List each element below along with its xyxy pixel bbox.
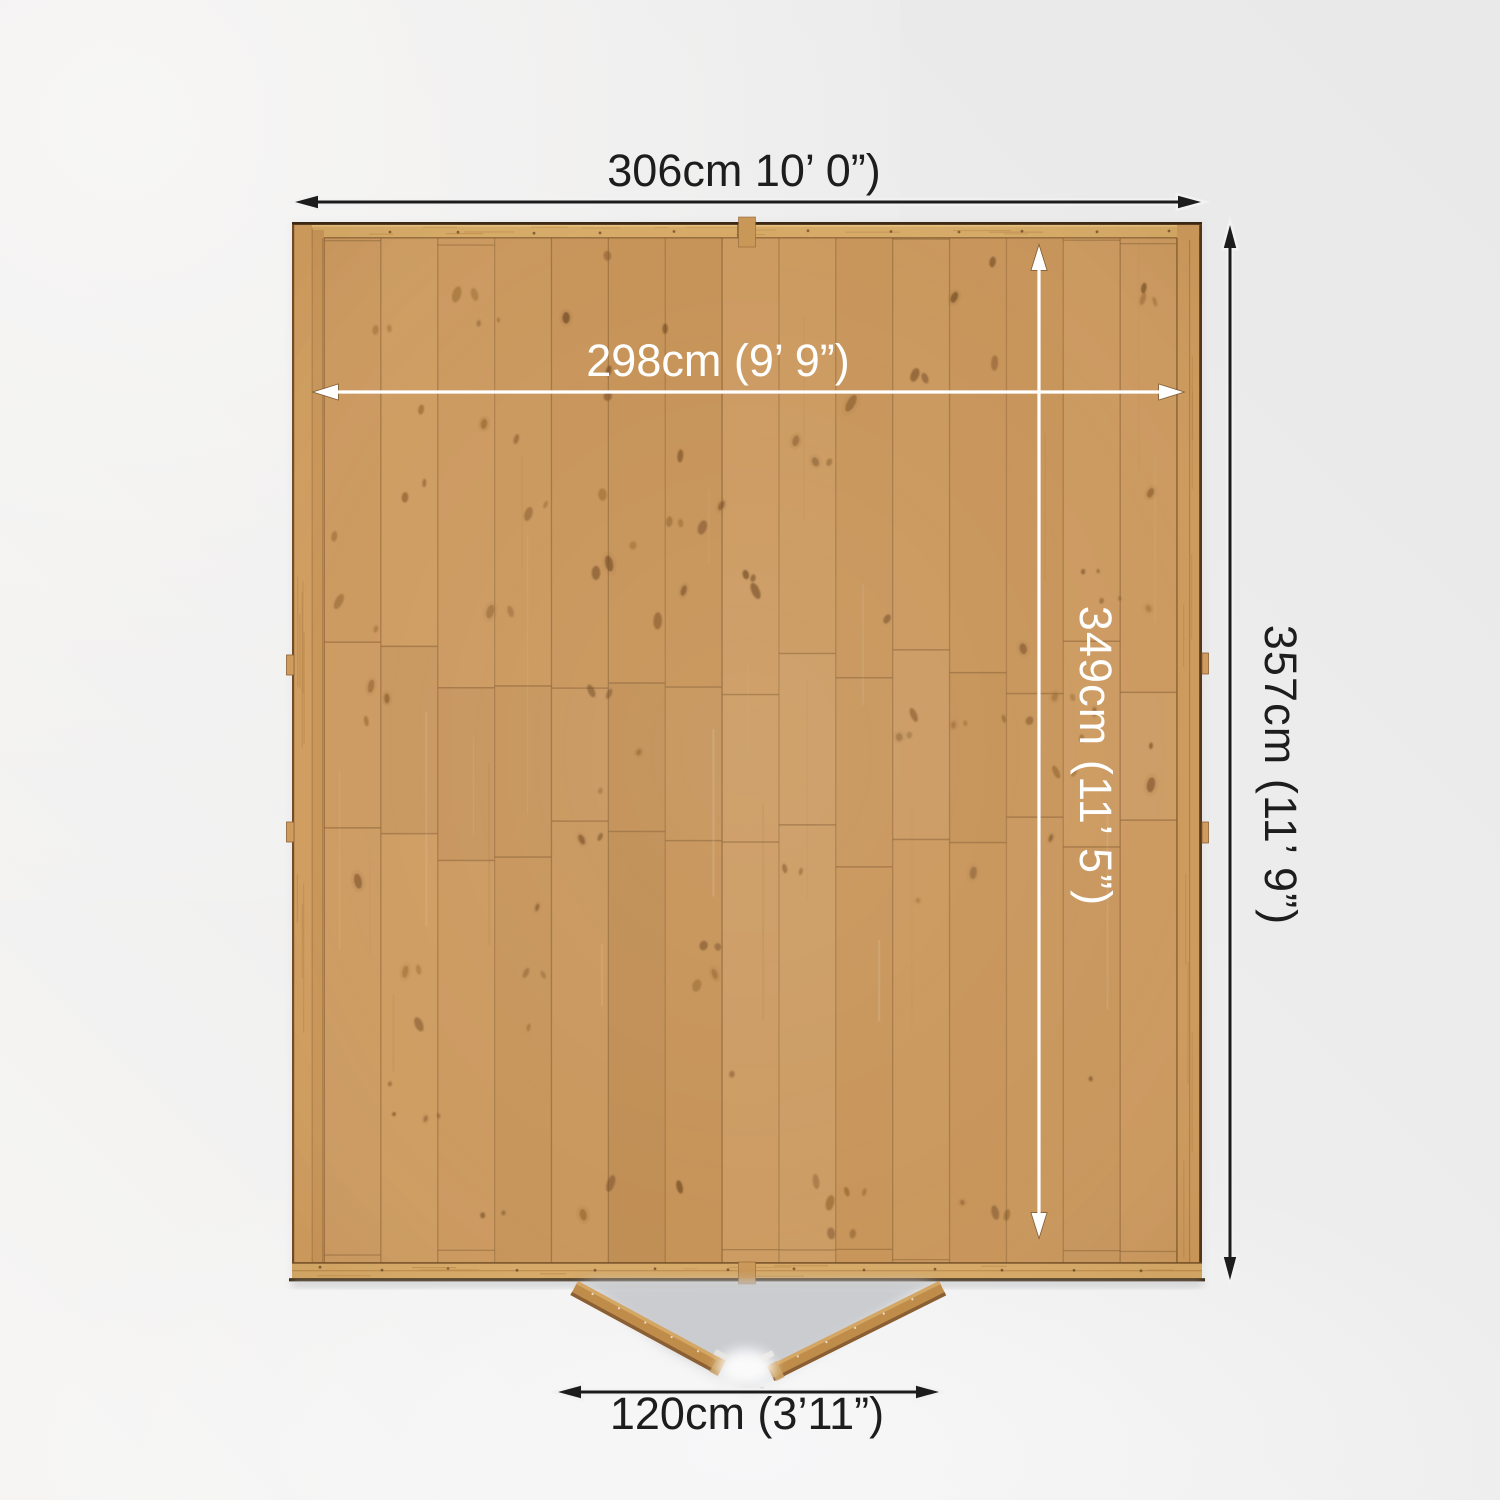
- svg-text:298cm (9’ 9”): 298cm (9’ 9”): [586, 335, 849, 386]
- svg-text:349cm (11’ 5”): 349cm (11’ 5”): [1070, 606, 1121, 907]
- svg-text:120cm (3’11”): 120cm (3’11”): [610, 1388, 884, 1439]
- svg-text:306cm 10’ 0”): 306cm 10’ 0”): [607, 145, 880, 196]
- svg-text:357cm (11’ 9”): 357cm (11’ 9”): [1255, 625, 1306, 926]
